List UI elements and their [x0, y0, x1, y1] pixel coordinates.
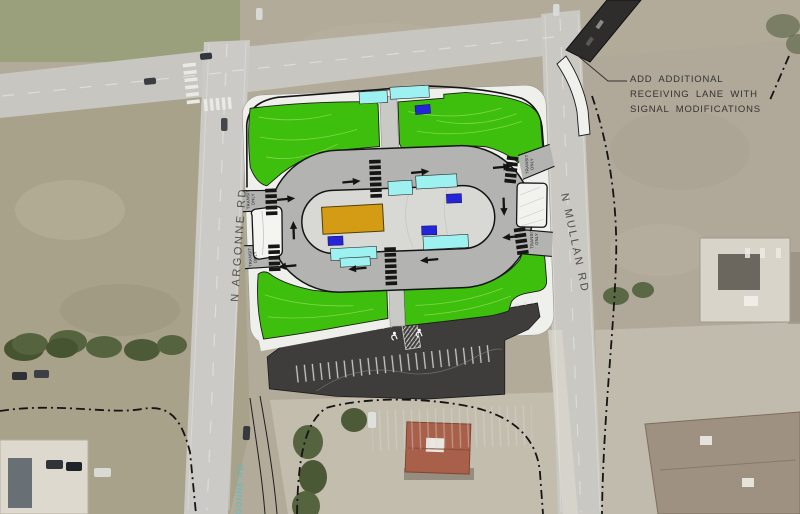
transit-only-marking: ONLY	[529, 158, 534, 170]
blue-marker-island-c	[422, 226, 437, 236]
transit-only-marking: ONLY	[252, 251, 257, 263]
shelter-loop-nw	[388, 180, 413, 195]
annotation-line-1: ADD ADDITIONAL	[630, 74, 723, 85]
shelter-north-2	[390, 85, 430, 99]
car	[200, 52, 213, 60]
car	[256, 8, 263, 20]
bus-pad-east	[516, 183, 547, 227]
car	[94, 468, 111, 477]
car	[12, 372, 27, 380]
site-plan-screenshot: TRANSIT ONLY TRANSIT ONLY TRANSIT ONLY T…	[0, 0, 800, 514]
car	[745, 248, 750, 258]
annotation-line-3: SIGNAL MODIFICATIONS	[630, 104, 761, 115]
transit-building	[322, 204, 384, 234]
transit-only-marking: ONLY	[250, 193, 255, 205]
building-southwest	[0, 440, 88, 514]
shelter-loop-se	[423, 234, 469, 249]
car	[760, 248, 765, 258]
shelter-loop-ne	[416, 174, 458, 189]
car	[243, 426, 251, 440]
car	[221, 118, 228, 131]
annotation-line-2: RECEIVING LANE WITH	[630, 89, 758, 100]
car	[34, 370, 49, 378]
car	[776, 248, 781, 258]
transit-only-marking: ONLY	[534, 233, 539, 245]
old-lot-stripes	[371, 405, 532, 451]
shelter-north-1	[359, 90, 388, 103]
blue-marker-island-w	[328, 236, 343, 246]
field-texture	[610, 224, 710, 276]
building-southeast	[645, 412, 800, 514]
pedestrian-path-north	[380, 96, 399, 153]
blue-marker-north	[415, 104, 431, 114]
plan-canvas: TRANSIT ONLY TRANSIT ONLY TRANSIT ONLY T…	[0, 0, 800, 514]
blue-marker-island-e	[446, 194, 461, 204]
car	[144, 77, 157, 85]
car	[66, 462, 82, 471]
field-texture	[610, 110, 750, 190]
car	[46, 460, 63, 469]
field-texture	[60, 284, 180, 336]
field-texture	[15, 180, 125, 240]
pedestrian-path-south	[389, 288, 405, 327]
car	[553, 4, 560, 16]
